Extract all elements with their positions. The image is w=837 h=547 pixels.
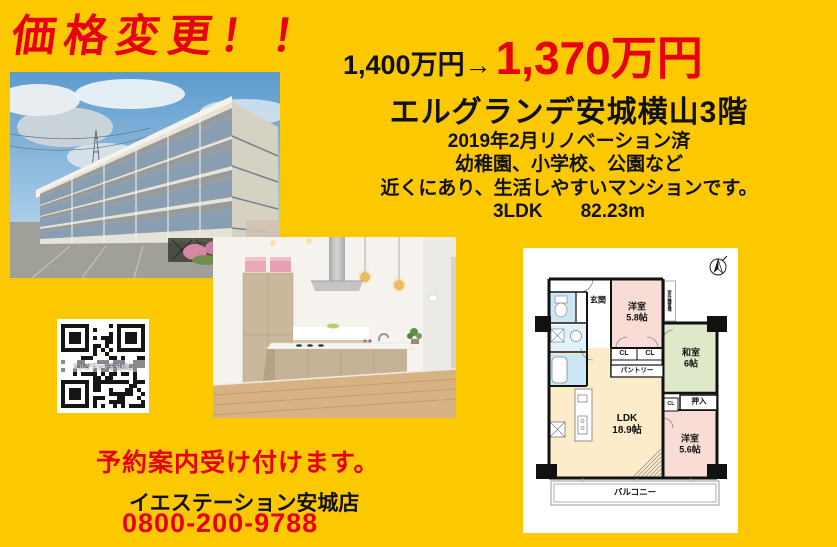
old-price: 1,400万円→ xyxy=(343,43,492,82)
fp-label-cl-b: CL xyxy=(645,350,654,358)
property-line-description: 近くにあり、生活しやすいマンションです。 xyxy=(362,177,776,201)
property-line-facilities: 幼稚園、小学校、公園など xyxy=(362,153,776,177)
new-price: 1,370万円 xyxy=(496,22,703,88)
kitchen-interior-photo xyxy=(213,237,456,418)
price-change-headline: 価格変更！！ xyxy=(8,0,329,64)
floor-plan: 玄関 洋室 5.8帖 室外機置場 和室 6帖 CL CL パントリー 押入 CL… xyxy=(523,248,738,533)
qr-code: エルグランデ安城横山 xyxy=(57,319,149,413)
fp-label-cl-a: CL xyxy=(619,350,628,358)
property-name: エルグランデ安城横山3階 xyxy=(362,96,776,130)
phone-number: 0800-200-9788 xyxy=(122,508,318,539)
fp-label-western2: 洋室 5.6帖 xyxy=(679,433,701,454)
fp-label-balcony: バルコニー xyxy=(614,487,656,497)
fp-label-genkan: 玄関 xyxy=(590,295,606,304)
price-line: 1,400万円→ 1,370万円 xyxy=(343,22,703,88)
property-info: エルグランデ安城横山3階 2019年2月リノベーション済 幼稚園、小学校、公園な… xyxy=(362,96,776,224)
fp-label-ldk: LDK 18.9帖 xyxy=(612,413,641,437)
fp-label-japanese: 和室 6帖 xyxy=(682,347,700,368)
qr-caption: エルグランデ安城横山 xyxy=(73,362,133,371)
fp-label-western1: 洋室 5.8帖 xyxy=(626,301,648,322)
fp-label-oshiire: 押入 xyxy=(692,398,707,407)
flyer-page: 価格変更！！ 1,400万円→ 1,370万円 エルグランデ安城横山3階 201… xyxy=(0,0,837,547)
property-line-layout-size: 3LDK 82.23m xyxy=(362,200,776,224)
fp-label-pantry: パントリー xyxy=(621,367,654,375)
property-line-renovation: 2019年2月リノベーション済 xyxy=(362,130,776,154)
reservation-notice: 予約案内受け付けます。 xyxy=(96,443,380,479)
fp-label-outdoor-unit: 室外機置場 xyxy=(667,290,672,312)
qr-caption-band: エルグランデ安城横山 xyxy=(60,360,146,372)
fp-label-cl-c: CL xyxy=(667,401,674,407)
